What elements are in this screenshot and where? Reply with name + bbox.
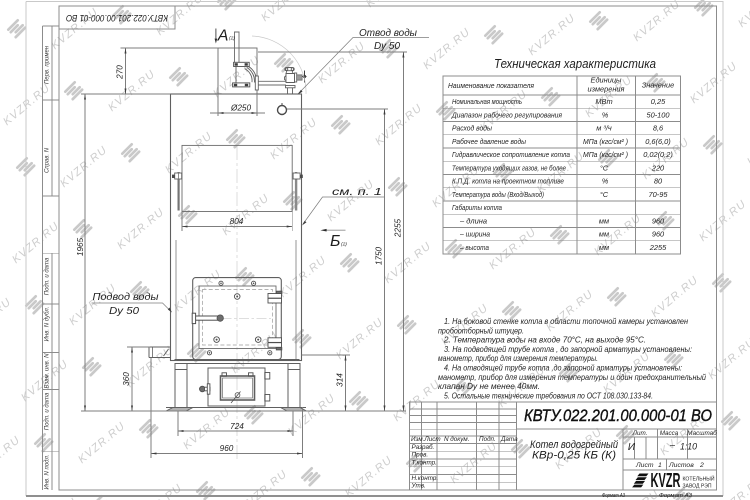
svg-text:1965: 1965: [76, 237, 85, 256]
svg-text:Формат А3: Формат А3: [602, 493, 626, 499]
svg-text:К.П.Д. котла на проектном топл: К.П.Д. котла на проектном топливе: [452, 177, 564, 186]
svg-text:–: –: [669, 440, 676, 450]
svg-text:Наименование показателя: Наименование показателя: [448, 81, 534, 90]
svg-text:КВр-0,25 КБ (К): КВр-0,25 КБ (К): [532, 450, 616, 462]
svg-text:220: 220: [651, 163, 665, 172]
svg-text:КВТУ.022.201.00.000-01 ВО: КВТУ.022.201.00.000-01 ВО: [65, 12, 168, 23]
svg-text:%: %: [602, 177, 609, 186]
svg-text:см. п. 1: см. п. 1: [332, 186, 382, 198]
svg-text:Масштаб: Масштаб: [687, 429, 717, 437]
svg-text:МВт: МВт: [595, 97, 612, 106]
svg-text:KVZR: KVZR: [651, 470, 681, 492]
svg-text:(2): (2): [341, 241, 347, 247]
svg-text:Взам. инв. N: Взам. инв. N: [45, 353, 51, 389]
svg-text:КОТЕЛЬНЫЙ: КОТЕЛЬНЫЙ: [683, 475, 715, 483]
svg-text:0,25: 0,25: [651, 97, 666, 106]
svg-text:270: 270: [116, 65, 125, 80]
svg-text:Подп. и дата: Подп. и дата: [45, 392, 51, 430]
svg-text:Ø250: Ø250: [230, 104, 251, 113]
svg-text:960: 960: [652, 230, 665, 239]
svg-text:Подп.: Подп.: [479, 435, 496, 443]
svg-text:Температура воды (Вход/Выход): Температура воды (Вход/Выход): [452, 190, 544, 199]
svg-text:Диапазон рабочего регулировани: Диапазон рабочего регулирования: [451, 110, 562, 119]
svg-text:Перв. примен: Перв. примен: [45, 45, 51, 84]
svg-text:Формат А3: Формат А3: [659, 493, 693, 499]
svg-text:Пров.: Пров.: [412, 452, 429, 459]
svg-text:Расход воды: Расход воды: [452, 124, 493, 133]
svg-text:Справ. N: Справ. N: [45, 147, 51, 173]
svg-text:Дата: Дата: [500, 436, 518, 443]
svg-text:мм: мм: [599, 230, 609, 239]
svg-text:КВТУ.022.201.00.000-01 ВО: КВТУ.022.201.00.000-01 ВО: [524, 406, 712, 425]
svg-text:мм: мм: [599, 243, 609, 252]
svg-text:Масса: Масса: [660, 430, 679, 437]
svg-text:360: 360: [122, 372, 131, 386]
svg-text:Гидравлическое сопротивление к: Гидравлическое сопротивление котла: [452, 150, 570, 159]
svg-text:50-100: 50-100: [646, 110, 670, 119]
svg-text:– высота: – высота: [459, 243, 489, 252]
svg-text:314: 314: [336, 373, 345, 387]
svg-text:80: 80: [654, 177, 663, 186]
svg-text:1: 1: [658, 462, 662, 469]
svg-text:Подвод воды: Подвод воды: [93, 291, 159, 303]
svg-text:А: А: [217, 28, 229, 45]
svg-text:960: 960: [220, 444, 234, 453]
svg-text:Температура уходящих газов, не: Температура уходящих газов, не более: [452, 163, 566, 172]
svg-text:2255: 2255: [649, 243, 667, 252]
svg-text:м ³/ч: м ³/ч: [596, 124, 612, 133]
svg-text:Dy 50: Dy 50: [109, 305, 139, 317]
svg-text:И: И: [628, 442, 636, 453]
svg-text:Б: Б: [330, 233, 340, 250]
svg-text:(2): (2): [229, 36, 235, 42]
svg-text:Лист: Лист: [635, 462, 654, 469]
svg-text:724: 724: [230, 422, 244, 431]
svg-text:Лит.: Лит.: [632, 430, 648, 437]
svg-text:Утв.: Утв.: [411, 483, 426, 490]
svg-text:Техническая характеристика: Техническая характеристика: [494, 56, 656, 71]
svg-text:Номинальная мощность: Номинальная мощность: [452, 97, 522, 106]
svg-text:°С: °С: [600, 190, 609, 199]
svg-text:0,6(6,0): 0,6(6,0): [645, 137, 671, 146]
svg-text:Т.контр.: Т.контр.: [412, 460, 437, 467]
svg-text:Габариты котла: Габариты котла: [452, 203, 502, 212]
svg-text:8,6: 8,6: [653, 124, 664, 133]
svg-text:Единицы: Единицы: [591, 76, 623, 85]
svg-text:Значение: Значение: [642, 81, 674, 90]
svg-text:МПа (кгс/см² ): МПа (кгс/см² ): [583, 150, 628, 159]
svg-text:°С: °С: [600, 163, 609, 172]
svg-text:Разраб.: Разраб.: [412, 443, 435, 451]
svg-text:N докум.: N докум.: [444, 435, 469, 443]
svg-text:Рабочее давление воды: Рабочее давление воды: [452, 137, 526, 146]
svg-text:1:10: 1:10: [680, 442, 697, 452]
svg-text:ЗАВОД РЭП: ЗАВОД РЭП: [683, 484, 712, 490]
svg-text:0,02(0,2): 0,02(0,2): [643, 150, 673, 159]
svg-text:Dy 50: Dy 50: [374, 40, 400, 52]
svg-text:– длина: – длина: [459, 216, 487, 225]
svg-text:5. Остальные технические треб: 5. Остальные технические требования по О…: [444, 391, 653, 401]
svg-text:– ширина: – ширина: [459, 230, 490, 239]
svg-text:Инв. N подл.: Инв. N подл.: [45, 454, 51, 489]
svg-text:Изм.Лист: Изм.Лист: [411, 436, 441, 443]
svg-text:70-95: 70-95: [649, 190, 669, 199]
svg-text:Н.контр.: Н.контр.: [412, 475, 439, 482]
svg-text:мм: мм: [599, 216, 609, 225]
svg-text:измерения: измерения: [588, 84, 625, 93]
svg-text:Инв. N дубл.: Инв. N дубл.: [45, 307, 51, 342]
svg-text:1750: 1750: [375, 246, 384, 265]
svg-text:960: 960: [652, 216, 665, 225]
svg-text:Листов: Листов: [668, 462, 694, 469]
svg-text:%: %: [602, 110, 609, 119]
svg-text:2255: 2255: [394, 218, 403, 238]
svg-text:2: 2: [699, 462, 704, 469]
svg-text:МПа (кгс/см² ): МПа (кгс/см² ): [583, 137, 628, 146]
svg-text:804: 804: [230, 217, 244, 226]
svg-text:Подп. и дата: Подп. и дата: [45, 257, 51, 295]
